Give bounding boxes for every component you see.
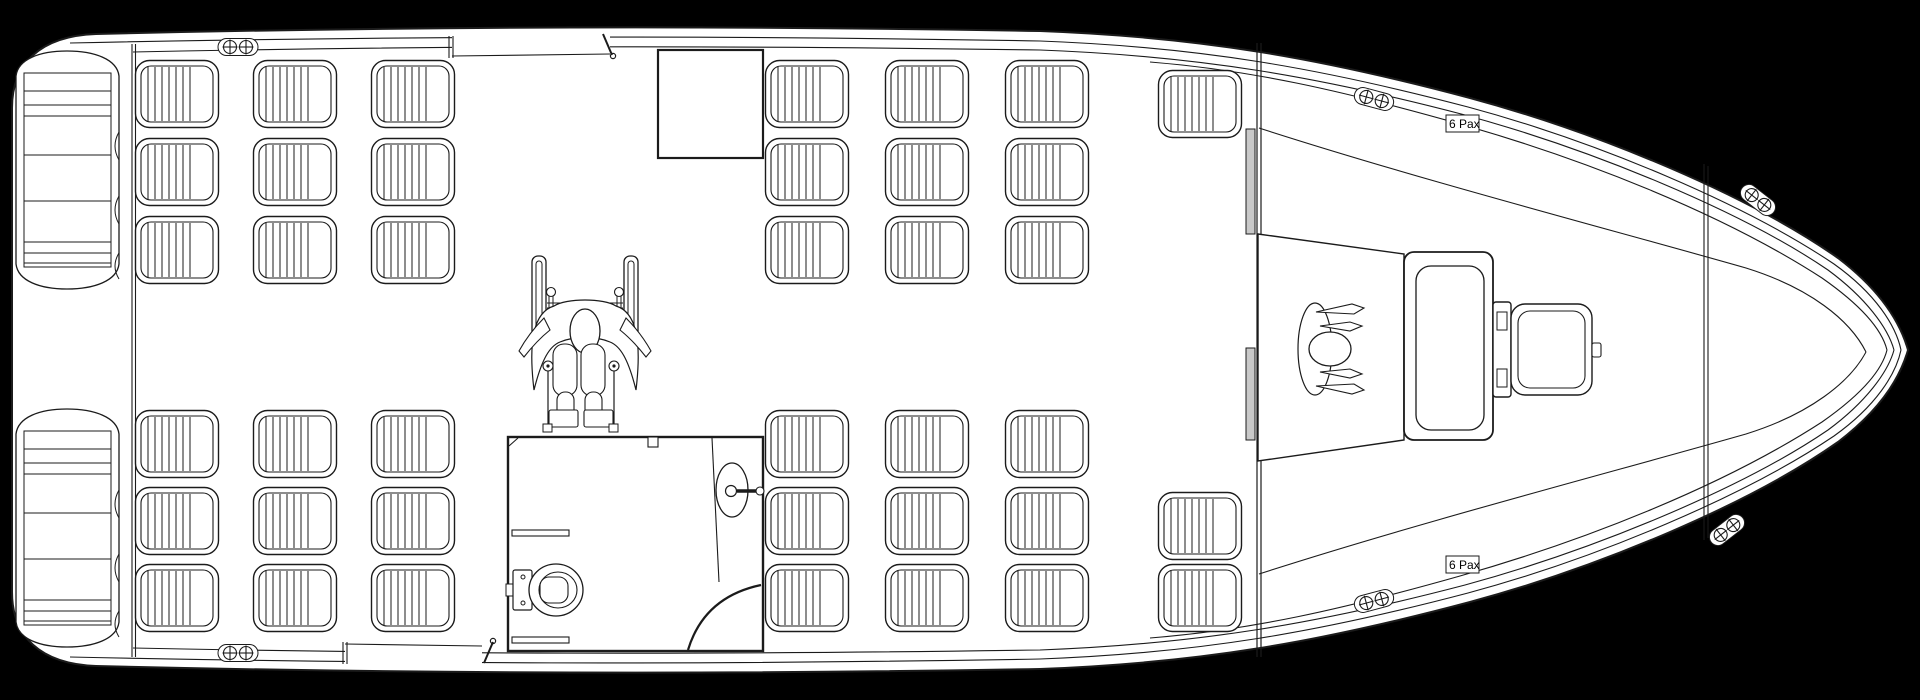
passenger-seat-starboard-aft: [254, 565, 337, 632]
passenger-seat-starboard-aft: [136, 565, 219, 632]
deck-plan-canvas: 6 Pax 6 Pax: [0, 0, 1920, 700]
passenger-seat-starboard-mid: [766, 411, 849, 478]
passenger-seat-starboard-aft: [372, 565, 455, 632]
passenger-seat-starboard-forward: [1159, 493, 1242, 560]
passenger-seat-starboard-forward: [1159, 565, 1242, 632]
toilet: [506, 564, 583, 616]
passenger-seat-port-mid: [766, 61, 849, 128]
capacity-label-port: 6 Pax: [1446, 115, 1480, 132]
passenger-seat-port-aft: [136, 61, 219, 128]
helm-console: [1404, 252, 1493, 440]
passenger-seat-starboard-aft: [254, 488, 337, 555]
passenger-seat-starboard-mid: [886, 565, 969, 632]
capacity-label-text: 6 Pax: [1449, 558, 1480, 572]
passenger-seat-starboard-mid: [1006, 488, 1089, 555]
sliding-door-panel: [1246, 129, 1255, 234]
passenger-seat-port-mid: [766, 217, 849, 284]
passenger-seat-port-mid: [1006, 139, 1089, 206]
sliding-door-panel: [1246, 348, 1255, 440]
door-jamb: [648, 437, 658, 447]
passenger-seat-starboard-mid: [886, 488, 969, 555]
passenger-seat-port-aft: [254, 217, 337, 284]
passenger-seat-starboard-mid: [766, 565, 849, 632]
capacity-label-starboard: 6 Pax: [1446, 556, 1480, 573]
passenger-seat-starboard-aft: [372, 411, 455, 478]
passenger-seat-starboard-mid: [1006, 411, 1089, 478]
restroom: [506, 437, 764, 651]
passenger-seat-port-aft: [136, 139, 219, 206]
boarding-gate-starboard: [343, 638, 496, 664]
passenger-seat-starboard-mid: [886, 411, 969, 478]
passenger-seat-port-aft: [372, 139, 455, 206]
passenger-seat-port-mid: [766, 139, 849, 206]
passenger-seat-starboard-mid: [766, 488, 849, 555]
passenger-seat-starboard-aft: [136, 411, 219, 478]
deck-plan-drawing: 6 Pax 6 Pax: [0, 0, 1920, 700]
passenger-seat-starboard-aft: [372, 488, 455, 555]
mooring-cleat: [218, 645, 258, 662]
captain-chair: [1493, 302, 1601, 397]
grab-bar: [512, 637, 569, 643]
stern-bench-port: [16, 51, 119, 289]
capacity-label-text: 6 Pax: [1449, 117, 1480, 131]
passenger-seat-port-mid: [886, 139, 969, 206]
passenger-seat-port-mid: [886, 217, 969, 284]
grab-bar: [512, 530, 569, 536]
passenger-seat-port-aft: [372, 61, 455, 128]
passenger-seat-starboard-aft: [136, 488, 219, 555]
passenger-seat-port-aft: [254, 139, 337, 206]
passenger-seat-starboard-mid: [1006, 565, 1089, 632]
passenger-seat-starboard-aft: [254, 411, 337, 478]
passenger-seat-port-aft: [136, 217, 219, 284]
passenger-seat-port-aft: [254, 61, 337, 128]
stern-bench-starboard: [16, 409, 119, 647]
passenger-seat-port-mid: [1006, 61, 1089, 128]
passenger-seat-port-mid: [886, 61, 969, 128]
passenger-seat-port-mid: [1006, 217, 1089, 284]
passenger-seat-port-forward: [1159, 71, 1242, 138]
storage-box: [658, 50, 763, 158]
boarding-gate-port: [449, 33, 616, 59]
passenger-seat-port-aft: [372, 217, 455, 284]
mooring-cleat: [218, 39, 258, 56]
